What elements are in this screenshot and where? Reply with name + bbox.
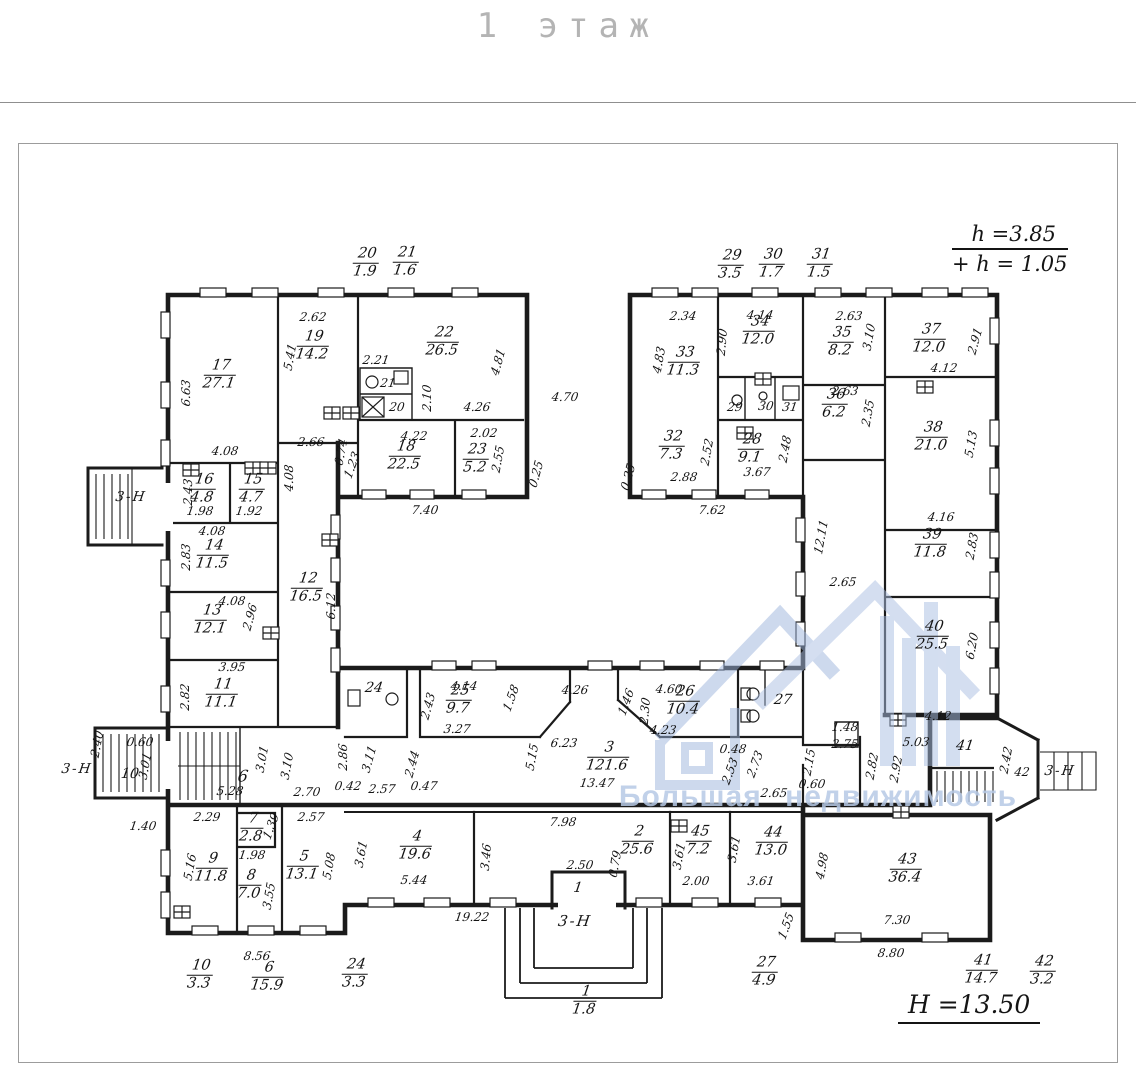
dim-label: 5.03 bbox=[902, 735, 931, 749]
dim-label: 2.15 bbox=[800, 747, 818, 778]
room-number-31: 31 bbox=[781, 400, 798, 414]
dim-label: 2.40 bbox=[88, 729, 106, 760]
dim-label: 2.82 bbox=[178, 683, 192, 712]
room-label-3: 3121.6 bbox=[585, 741, 631, 774]
area-label-24: 243.3 bbox=[339, 958, 370, 991]
dim-label: 1.40 bbox=[129, 819, 158, 833]
room-number-10: 10 bbox=[120, 766, 140, 782]
dim-label: 2.66 bbox=[297, 435, 326, 449]
dim-label: 4.16 bbox=[927, 510, 956, 524]
room-label-12: 1216.5 bbox=[289, 572, 326, 605]
dim-label: 2.83 bbox=[963, 531, 981, 562]
room-label-40: 4025.5 bbox=[915, 620, 952, 653]
dim-label: 1.55 bbox=[775, 910, 797, 942]
area-label-20: 201.9 bbox=[350, 247, 381, 280]
dim-label: 4.08 bbox=[218, 594, 247, 608]
area-label-10: 103.3 bbox=[184, 959, 215, 992]
dim-label: 4.08 bbox=[211, 444, 240, 458]
dim-label: 2.52 bbox=[698, 437, 716, 468]
dim-label: 3.27 bbox=[443, 722, 472, 736]
room-label-19: 1914.2 bbox=[295, 330, 332, 363]
dim-label: 2.70 bbox=[293, 785, 322, 799]
dim-label: 3.67 bbox=[743, 465, 772, 479]
dim-label: 4.22 bbox=[400, 429, 429, 443]
dim-label: 2.02 bbox=[470, 426, 499, 440]
dim-label: 4.08 bbox=[282, 464, 296, 493]
dim-label: 1.48 bbox=[831, 720, 860, 734]
dim-label: 5.15 bbox=[523, 742, 541, 773]
room-number-29: 29 bbox=[726, 400, 743, 414]
room-label-22: 2226.5 bbox=[425, 326, 462, 359]
dim-label: 3.10 bbox=[278, 751, 296, 782]
dim-label: 2.65 bbox=[829, 575, 858, 589]
room-number-21: 21 bbox=[379, 376, 396, 390]
dim-label: 12.11 bbox=[811, 518, 830, 556]
room-label-5: 513.1 bbox=[285, 850, 322, 883]
room-label-9: 911.8 bbox=[194, 852, 231, 885]
dim-label: 1.98 bbox=[238, 848, 267, 862]
dim-label: 2.21 bbox=[362, 353, 391, 367]
dim-label: 2.48 bbox=[776, 434, 794, 465]
dim-label: 2.75 bbox=[831, 737, 860, 751]
dim-label: 3.95 bbox=[218, 660, 247, 674]
room-label-43: 4336.4 bbox=[888, 853, 925, 886]
dim-label: 4.12 bbox=[930, 361, 959, 375]
dim-label: 8.56 bbox=[243, 949, 272, 963]
dim-label: 3.61 bbox=[352, 839, 370, 870]
dim-label: 2.29 bbox=[193, 810, 222, 824]
dim-label: 0.60 bbox=[798, 777, 827, 791]
room-number-41: 41 bbox=[955, 738, 975, 754]
dim-label: 2.34 bbox=[669, 309, 698, 323]
room-number-42: 42 bbox=[1013, 765, 1030, 779]
dim-label: 4.14 bbox=[450, 679, 479, 693]
height-note: h =3.85 + h = 1.05 bbox=[952, 222, 1068, 276]
dim-label: 3.10 bbox=[860, 322, 878, 353]
dim-label: 2.43 bbox=[181, 478, 195, 507]
room-label-17: 1727.1 bbox=[202, 359, 239, 392]
dim-label: 6.23 bbox=[550, 736, 579, 750]
dim-label: 2.10 bbox=[420, 384, 434, 413]
dim-label: 3.61 bbox=[670, 841, 688, 872]
building-height-note: H =13.50 bbox=[898, 990, 1040, 1024]
room-label-33: 3311.3 bbox=[666, 346, 703, 379]
dim-label: 4.70 bbox=[551, 390, 580, 404]
dim-label: 2.91 bbox=[965, 325, 985, 356]
dim-label: 4.08 bbox=[198, 524, 227, 538]
dim-label: 4.60 bbox=[655, 682, 684, 696]
exit-label: 3-Н bbox=[557, 912, 593, 930]
dim-label: 5.41 bbox=[281, 342, 299, 373]
floor-height-value: h =3.85 bbox=[952, 222, 1068, 250]
dim-label: 4.23 bbox=[649, 723, 678, 737]
basement-height-value: + h = 1.05 bbox=[952, 250, 1068, 276]
dim-label: 2.62 bbox=[299, 310, 328, 324]
label-layer: 1727.11914.22226.51822.5235.2164.8154.71… bbox=[0, 0, 1136, 1080]
dim-label: 6.63 bbox=[179, 379, 193, 408]
room-label-45: 457.2 bbox=[683, 825, 714, 858]
dim-label: 6.20 bbox=[963, 631, 981, 662]
dim-label: 2.63 bbox=[831, 384, 860, 398]
dim-label: 2.44 bbox=[402, 748, 422, 779]
exit-label: 3-Н bbox=[114, 489, 147, 505]
dim-label: 5.44 bbox=[400, 873, 429, 887]
dim-label: 4.83 bbox=[650, 345, 668, 376]
room-label-11: 1111.1 bbox=[204, 678, 241, 711]
room-label-2: 225.6 bbox=[620, 825, 657, 858]
area-label-1: 11.8 bbox=[571, 985, 599, 1018]
dim-label: 4.12 bbox=[924, 709, 953, 723]
dim-label: 7.30 bbox=[883, 913, 912, 927]
dim-label: 2.65 bbox=[760, 786, 789, 800]
room-label-4: 419.6 bbox=[398, 830, 435, 863]
room-number-30: 30 bbox=[757, 399, 774, 413]
room-label-14: 1411.5 bbox=[195, 539, 232, 572]
area-label-30: 301.7 bbox=[756, 248, 787, 281]
area-label-6: 615.9 bbox=[250, 961, 287, 994]
dim-label: 19.22 bbox=[454, 910, 490, 924]
dim-label: 2.35 bbox=[859, 398, 877, 429]
area-label-27: 274.9 bbox=[749, 956, 780, 989]
dim-label: 0.42 bbox=[334, 779, 363, 793]
dim-label: 8.80 bbox=[877, 946, 906, 960]
dim-label: 1.92 bbox=[235, 504, 264, 518]
dim-label: 2.53 bbox=[719, 755, 741, 787]
dim-label: 3.01 bbox=[253, 744, 271, 775]
dim-label: 5.28 bbox=[216, 784, 245, 798]
dim-label: 7.98 bbox=[549, 815, 578, 829]
dim-label: 6.12 bbox=[324, 592, 338, 621]
room-number-24: 24 bbox=[364, 680, 384, 696]
room-label-23: 235.2 bbox=[460, 443, 491, 476]
scanned-floor-plan-page: 1 этаж bbox=[0, 0, 1136, 1080]
dim-label: 3.61 bbox=[725, 834, 743, 865]
room-label-39: 3911.8 bbox=[913, 528, 950, 561]
room-label-13: 1312.1 bbox=[193, 604, 230, 637]
area-label-21: 211.6 bbox=[390, 246, 421, 279]
area-label-41: 4114.7 bbox=[964, 954, 1001, 987]
dim-label: 2.57 bbox=[297, 810, 326, 824]
dim-label: 2.86 bbox=[336, 743, 350, 772]
room-number-27: 27 bbox=[773, 692, 793, 708]
room-number-6: 6 bbox=[237, 767, 250, 786]
room-number-1: 1 bbox=[572, 880, 583, 896]
dim-label: 4.81 bbox=[488, 346, 508, 377]
dim-label: 2.82 bbox=[863, 751, 881, 782]
dim-label: 2.88 bbox=[670, 470, 699, 484]
dim-label: 7.62 bbox=[698, 503, 727, 517]
dim-label: 2.92 bbox=[887, 754, 905, 785]
room-label-35: 358.2 bbox=[825, 326, 856, 359]
dim-label: 0.25 bbox=[526, 458, 546, 489]
room-label-18: 1822.5 bbox=[387, 440, 424, 473]
room-label-37: 3712.0 bbox=[912, 323, 949, 356]
dim-label: 2.50 bbox=[566, 858, 595, 872]
dim-label: 2.57 bbox=[368, 782, 397, 796]
room-label-8: 87.0 bbox=[236, 869, 264, 902]
room-label-38: 3821.0 bbox=[914, 421, 951, 454]
dim-label: 7.40 bbox=[411, 503, 440, 517]
dim-label: 4.14 bbox=[746, 308, 775, 322]
dim-label: 2.63 bbox=[835, 309, 864, 323]
area-label-31: 311.5 bbox=[804, 248, 835, 281]
dim-label: 2.42 bbox=[997, 745, 1015, 776]
dim-label: 0.60 bbox=[126, 735, 155, 749]
area-label-29: 293.5 bbox=[715, 249, 746, 282]
dim-label: 0.25 bbox=[618, 461, 638, 492]
exit-label: 3-Н bbox=[60, 761, 93, 777]
dim-label: 3.61 bbox=[747, 874, 776, 888]
dim-label: 1.98 bbox=[186, 504, 215, 518]
room-label-28: 289.1 bbox=[735, 433, 766, 466]
dim-label: 0.47 bbox=[410, 779, 439, 793]
dim-label: 0.48 bbox=[719, 742, 748, 756]
room-number-20: 20 bbox=[388, 400, 405, 414]
dim-label: 1.58 bbox=[500, 682, 522, 714]
dim-label: 4.26 bbox=[463, 400, 492, 414]
dim-label: 2.30 bbox=[637, 696, 653, 726]
dim-label: 2.43 bbox=[418, 690, 438, 721]
dim-label: 4.26 bbox=[561, 683, 590, 697]
dim-label: 2.55 bbox=[489, 444, 507, 475]
dim-label: 5.08 bbox=[320, 851, 338, 882]
dim-label: 2.73 bbox=[744, 748, 766, 780]
room-label-32: 327.3 bbox=[656, 430, 687, 463]
room-label-44: 4413.0 bbox=[754, 826, 791, 859]
exit-label: 3-Н bbox=[1043, 763, 1076, 779]
area-label-42: 423.2 bbox=[1027, 955, 1058, 988]
dim-label: 13.47 bbox=[579, 776, 615, 790]
dim-label: 3.46 bbox=[478, 842, 494, 872]
dim-label: 3.11 bbox=[359, 743, 379, 774]
dim-label: 2.83 bbox=[179, 543, 193, 572]
dim-label: 4.98 bbox=[813, 851, 831, 882]
dim-label: 0.79 bbox=[606, 849, 624, 880]
dim-label: 2.00 bbox=[682, 874, 711, 888]
dim-label: 5.13 bbox=[962, 429, 980, 460]
dim-label: 2.90 bbox=[714, 327, 730, 357]
room-label-15: 154.7 bbox=[236, 473, 267, 506]
dim-label: 3.55 bbox=[260, 881, 278, 912]
dim-label: 1.46 bbox=[615, 686, 637, 718]
